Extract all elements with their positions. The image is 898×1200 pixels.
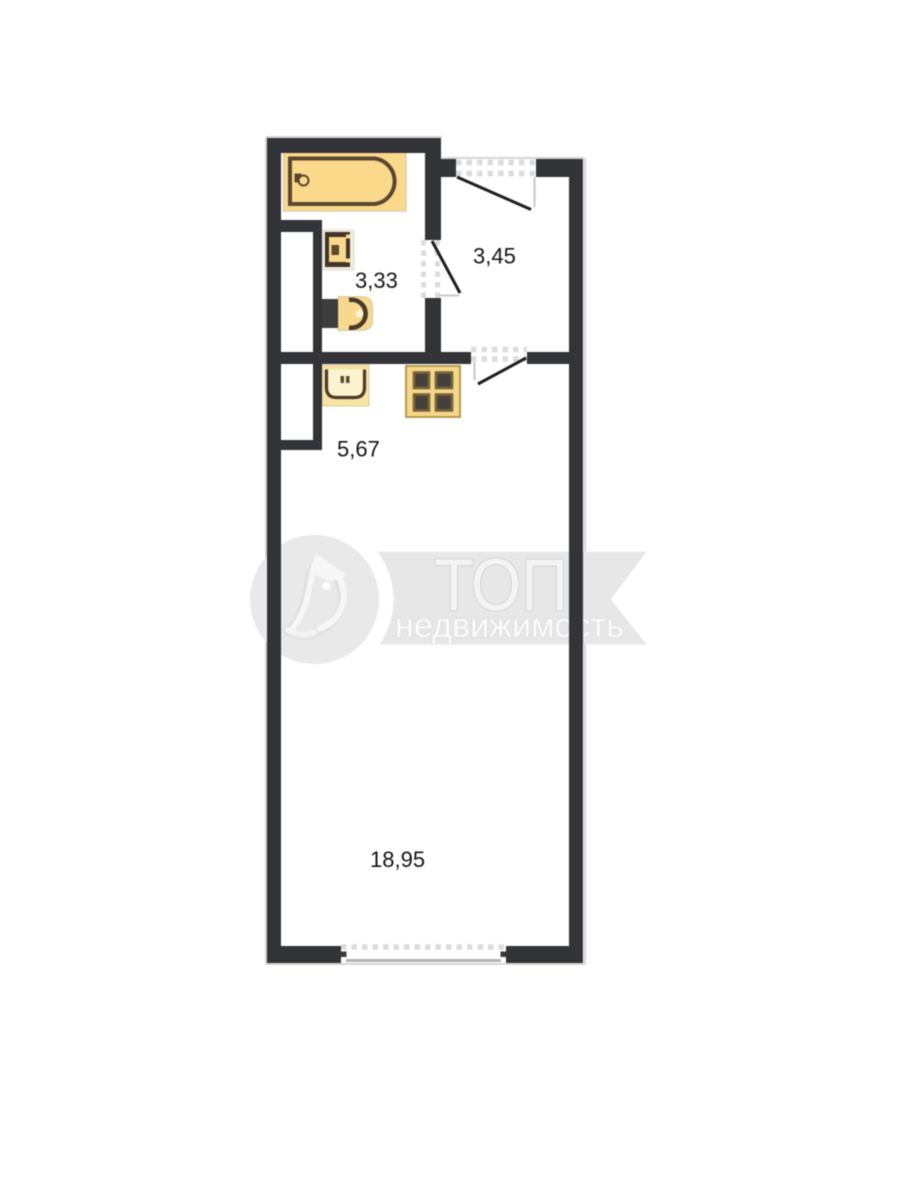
- svg-text:3,45: 3,45: [473, 244, 516, 269]
- svg-text:5,67: 5,67: [337, 437, 380, 462]
- svg-text:недвижимость: недвижимость: [395, 607, 624, 645]
- svg-text:3,33: 3,33: [355, 268, 398, 293]
- svg-text:18,95: 18,95: [370, 847, 425, 872]
